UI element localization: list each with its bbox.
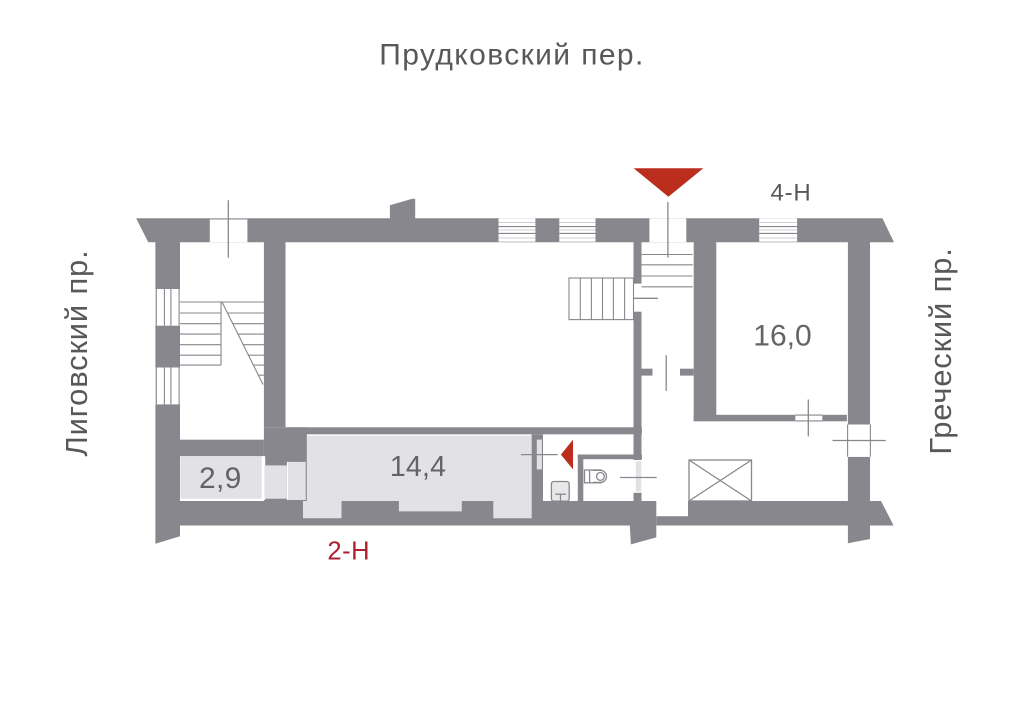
- svg-text:16,0: 16,0: [753, 320, 811, 353]
- svg-text:Лиговский пр.: Лиговский пр.: [59, 250, 94, 457]
- svg-text:2-Н: 2-Н: [327, 538, 370, 566]
- svg-text:Греческий пр.: Греческий пр.: [923, 247, 958, 454]
- svg-text:Прудковский пер.: Прудковский пер.: [379, 39, 645, 72]
- svg-text:2,9: 2,9: [199, 462, 242, 495]
- svg-text:4-Н: 4-Н: [770, 180, 811, 207]
- svg-text:14,4: 14,4: [390, 451, 446, 483]
